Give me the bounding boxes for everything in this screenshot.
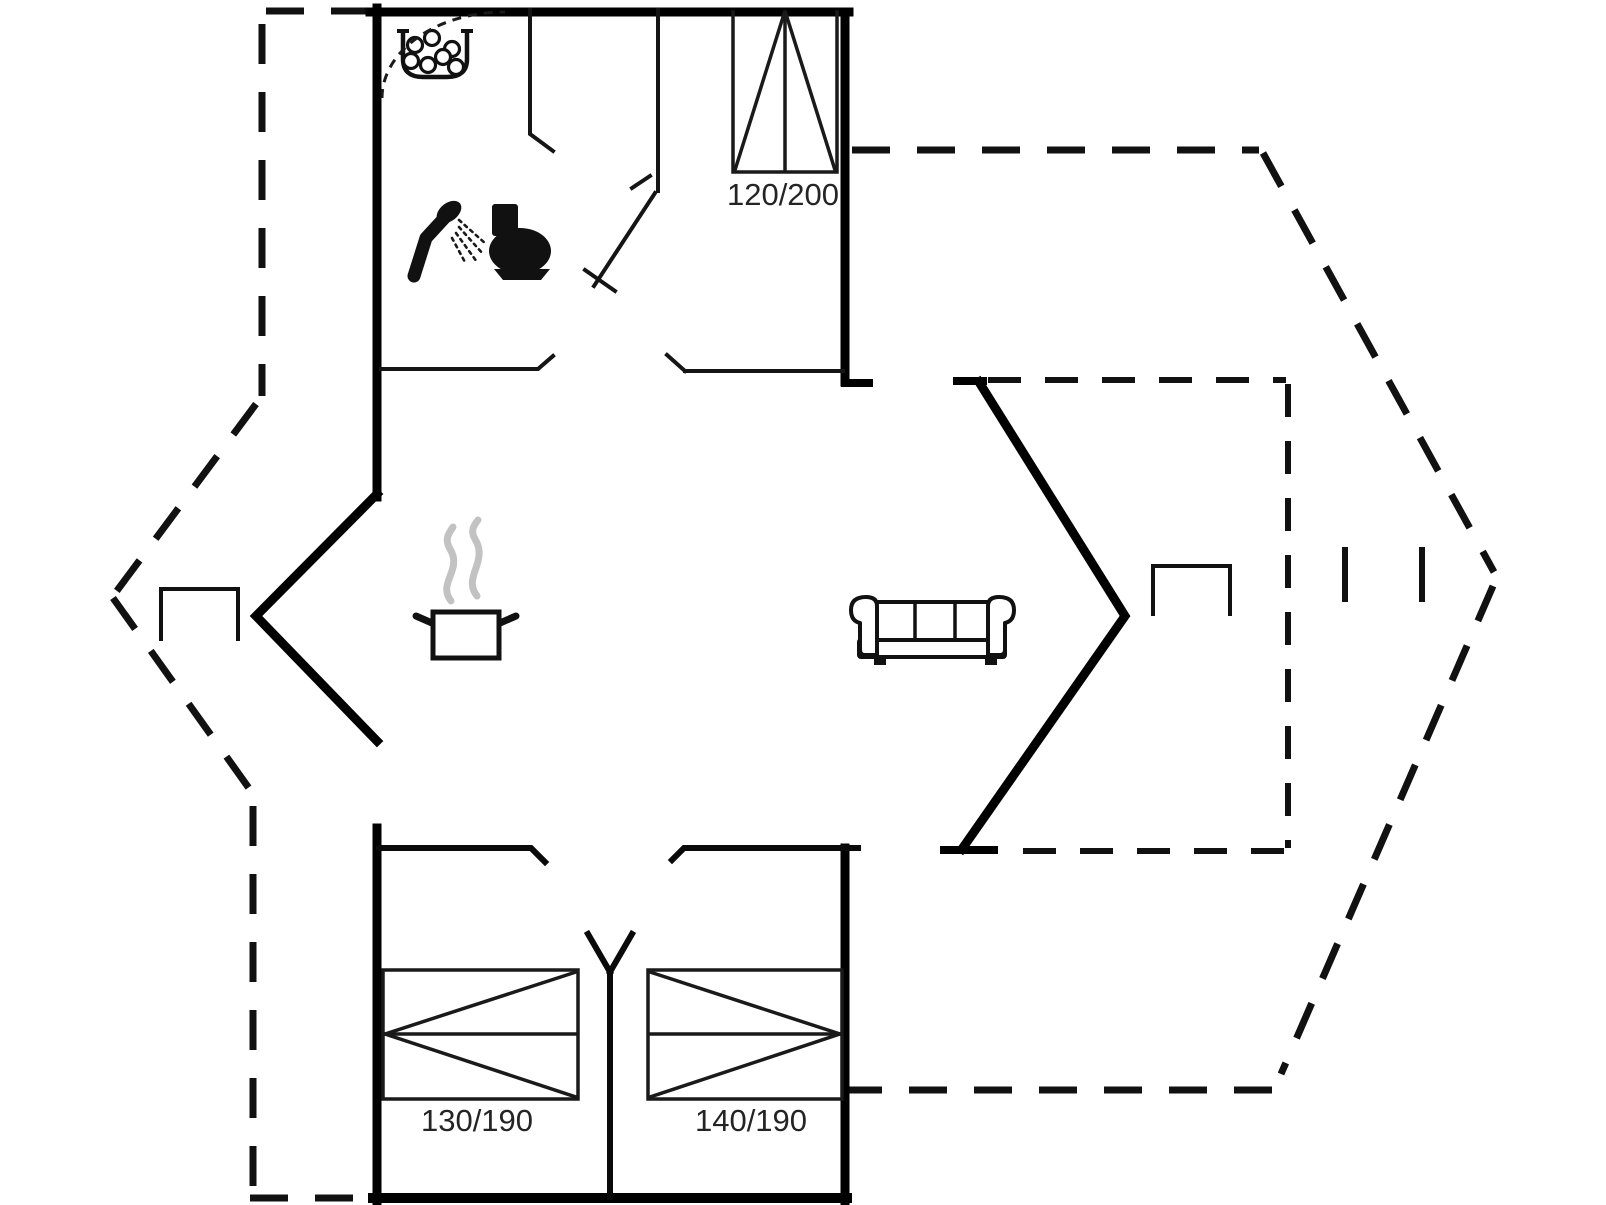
bed-bottom-left: 130/190 (383, 970, 578, 1138)
side-table-right (1153, 566, 1230, 616)
floorplan-canvas: 120/200 130/190 140/190 (0, 0, 1606, 1205)
bed-label-120-200: 120/200 (727, 177, 839, 212)
covered-terrace-dashed-rect (988, 380, 1288, 851)
wall-bedrooms-top-right (672, 848, 858, 860)
wall-bathroom-east (530, 10, 553, 151)
wall-bedroom-top-south (667, 355, 843, 371)
cooking-pot-steam-icon (416, 520, 516, 658)
wall-bedrooms-top-left (379, 848, 545, 862)
shower-icon (414, 196, 486, 276)
wall-west-bay (256, 494, 377, 741)
bed-bottom-right: 140/190 (648, 970, 842, 1138)
wall-bathroom-south (381, 356, 553, 369)
door-leaf-end-tick (585, 270, 615, 291)
bed-double-top: 120/200 (727, 12, 839, 212)
sofa-icon (851, 597, 1014, 665)
wall-bedroom-divider (588, 934, 632, 1197)
bed-label-130-190: 130/190 (421, 1103, 533, 1138)
side-table-left (161, 589, 238, 641)
bed-label-140-190: 140/190 (695, 1103, 807, 1138)
door-hinge-tick (632, 176, 650, 188)
door-leaf-hall (594, 193, 655, 286)
washbasin-pebbles-icon (397, 31, 473, 78)
floorplan-drawing: 120/200 130/190 140/190 (0, 0, 1606, 1205)
toilet-icon (489, 204, 551, 280)
